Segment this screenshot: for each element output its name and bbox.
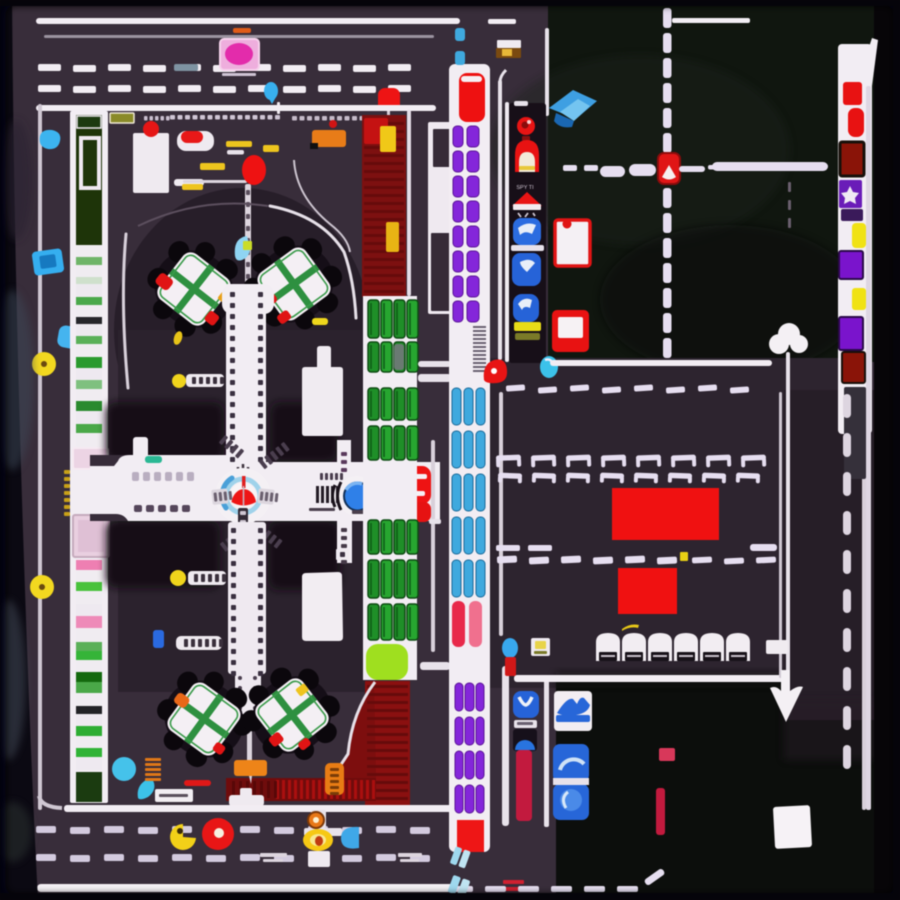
- svg-text:SPY TI: SPY TI: [516, 185, 534, 191]
